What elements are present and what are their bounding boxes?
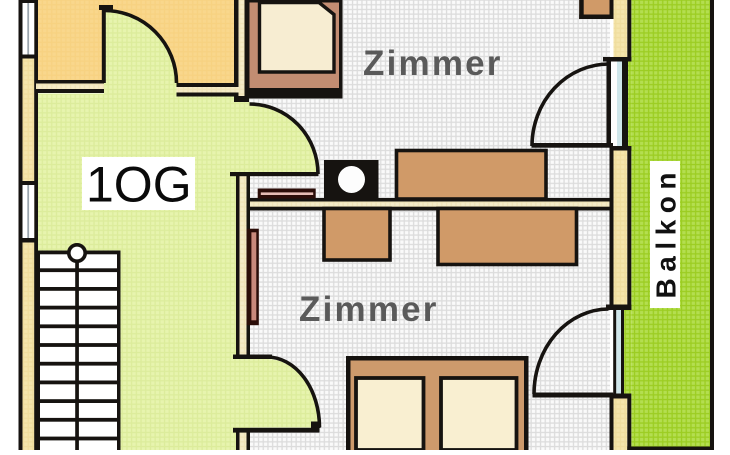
svg-text:Zimmer: Zimmer [363,44,503,83]
svg-text:Zimmer: Zimmer [299,290,439,329]
svg-text:1OG: 1OG [86,157,192,213]
